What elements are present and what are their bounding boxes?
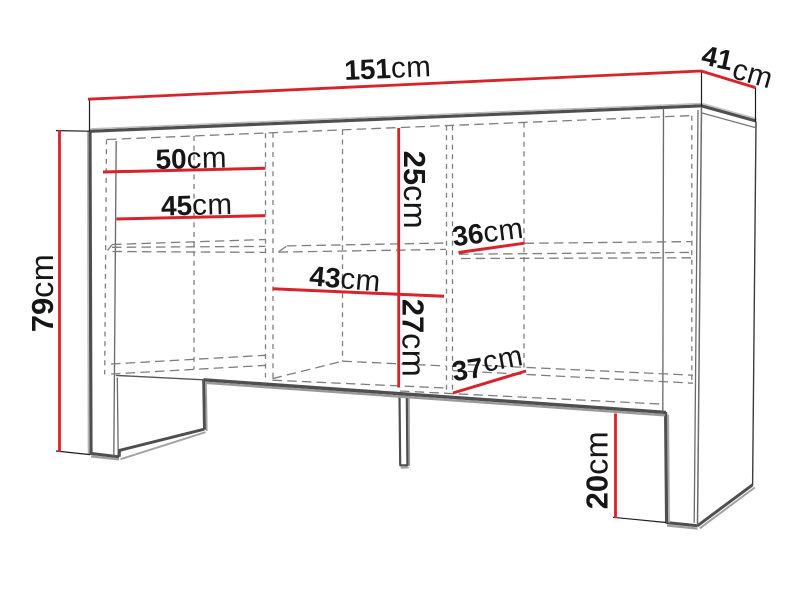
svg-text:45cm: 45cm xyxy=(161,188,233,223)
svg-text:25cm: 25cm xyxy=(397,151,433,229)
svg-text:20cm: 20cm xyxy=(579,431,615,509)
svg-text:79cm: 79cm xyxy=(24,254,60,332)
svg-text:50cm: 50cm xyxy=(155,141,227,176)
svg-text:41: 41 xyxy=(699,40,736,77)
svg-text:27cm: 27cm xyxy=(396,299,432,377)
svg-text:151cm: 151cm xyxy=(344,50,432,87)
svg-text:37: 37 xyxy=(450,352,486,387)
